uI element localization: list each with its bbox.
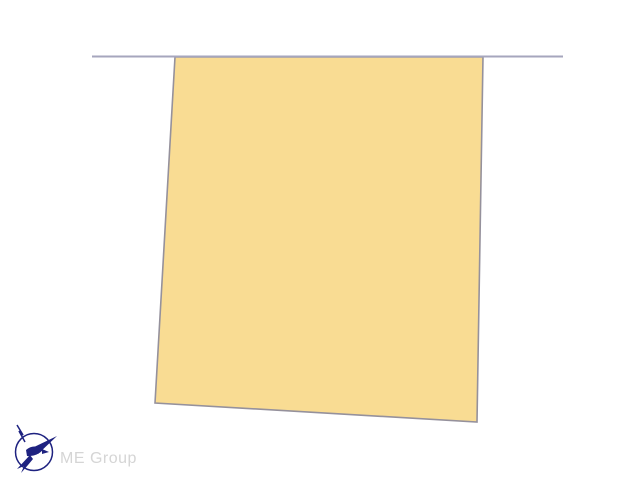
me-group-logo [12, 424, 60, 474]
land-parcel [155, 57, 483, 422]
plan-canvas: ME Group [0, 0, 640, 480]
land-plot-diagram [0, 0, 640, 480]
bird-icon [16, 425, 58, 473]
logo-text: ME Group [60, 450, 137, 468]
bird-beak [42, 449, 49, 454]
